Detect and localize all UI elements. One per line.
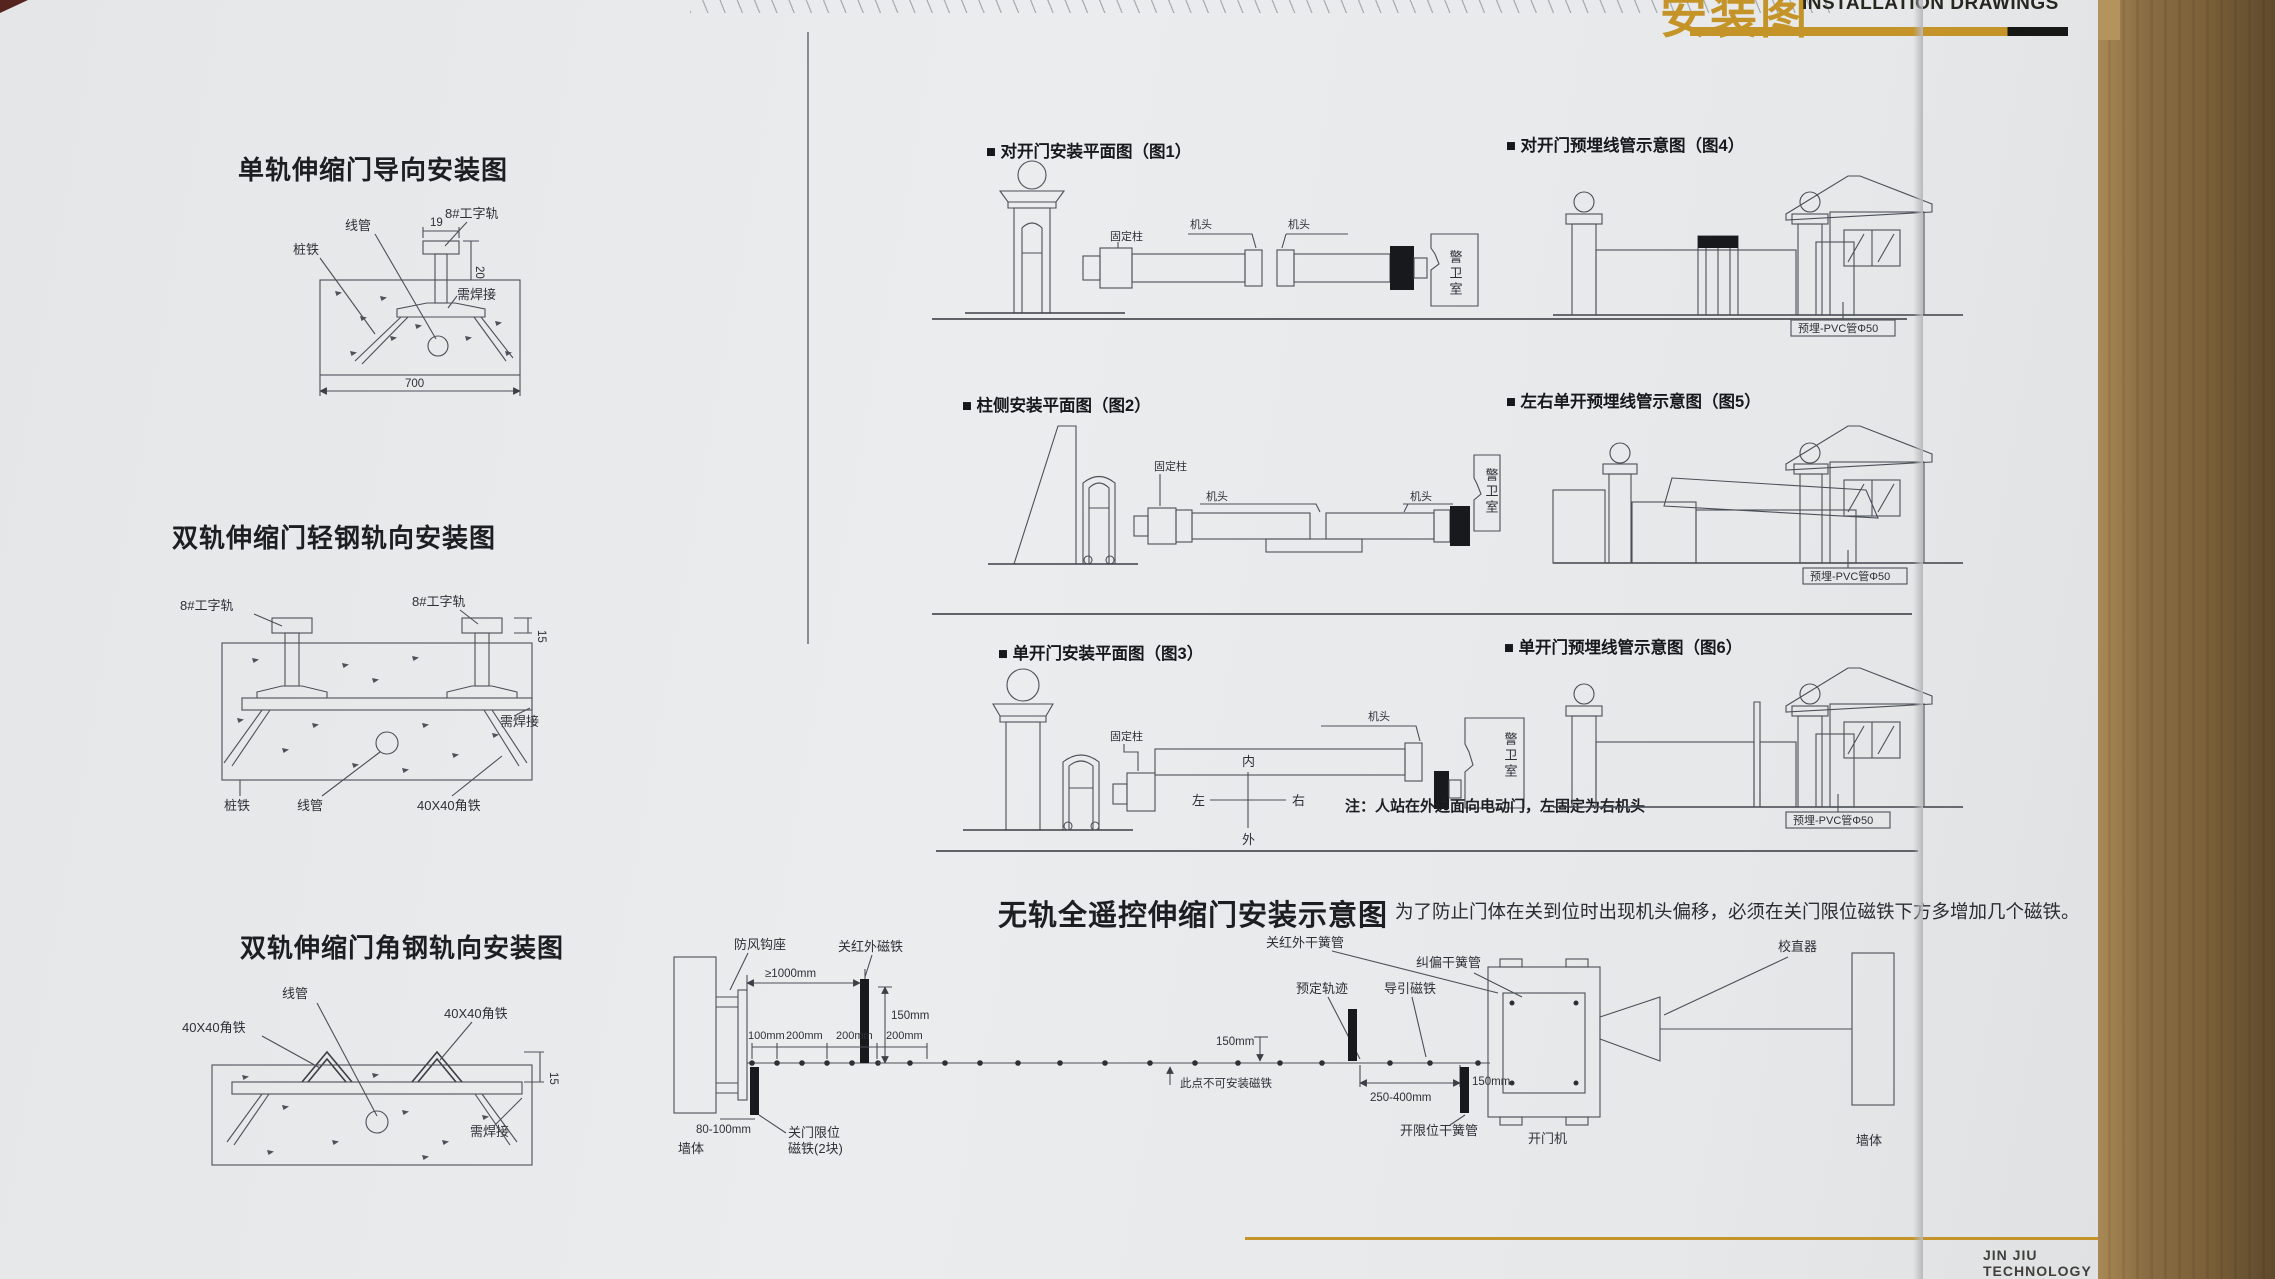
label-pile-iron: 桩铁 [293,242,319,257]
compass-inner: 内 [1242,754,1255,769]
trackless-note: 为了防止门体在关到位时出现机头偏移，必须在关门限位磁铁下方多增加几个磁铁。 [1395,898,2080,924]
label-angle-right: 40X40角铁 [444,1006,508,1021]
label-weld-3: 需焊接 [470,1124,509,1139]
label-head-2b: 机头 [1410,489,1432,503]
label-wall-left: 墙体 [678,1141,704,1156]
label-open-limit-reed: 开限位干簧管 [1400,1123,1478,1138]
diagram1-title: 单轨伸缩门导向安装图 [238,150,508,187]
dim-80-100: 80-100mm [696,1124,751,1136]
label-post-1: 固定柱 [1110,229,1143,243]
label-post-3: 固定柱 [1110,729,1143,743]
trackless-diagram: 墙体 墙体 防风钩座 ≥1000mm 关红外磁铁 [660,935,1980,1185]
fig6-elevation: 预埋-PVC管Φ50 [1548,642,1968,817]
diagram2-title: 双轨伸缩门轻钢轨向安装图 [172,518,496,555]
label-head-2a: 机头 [1206,489,1228,503]
dim-250-400: 250-400mm [1370,1092,1431,1104]
footer-accent-line [1245,1237,2098,1240]
label-weld: 需焊接 [457,287,496,302]
fig2-side-post-plan: 固定柱 机头 机头 警卫室 [948,408,1508,580]
label-no-magnet: 此点不可安装磁铁 [1180,1076,1272,1090]
label-head-1a: 机头 [1190,217,1212,231]
page-corner-mark [0,0,28,13]
dim-150-a: 150mm [891,1010,929,1022]
label-conduit-2: 线管 [297,798,323,813]
diagram2-double-rail-section: 8#工字轨 8#工字轨 15 需焊接 桩铁 线管 40X40角铁 [162,558,582,813]
label-rail: 8#工字轨 [445,206,498,221]
dim-20: 20 [473,266,485,279]
reed-bar [1348,1009,1357,1061]
dim-100: 100mm [748,1030,785,1042]
label-pvc-5: 预埋-PVC管Φ50 [1810,569,1890,583]
dim-200-b: 200mm [836,1030,873,1042]
footer-brand: JIN JIU TECHNOLOGY [1983,1247,2098,1279]
label-head-1b: 机头 [1288,217,1310,231]
compass: 内 外 左 右 [1192,754,1305,847]
page-edge-shadow [1913,0,1923,1279]
door-opener-machine [1488,959,1600,1125]
header-accent-bar [1690,27,2068,36]
compass-right: 右 [1292,793,1305,808]
label-wall-right: 墙体 [1856,1133,1882,1148]
dim-19: 19 [430,217,443,229]
row-divider-2 [932,613,1912,615]
label-ir-close-magnet: 关红外磁铁 [838,939,903,954]
dim-ge1000: ≥1000mm [765,968,816,980]
label-guard-1: 警卫室 [1448,249,1463,298]
diagram3-angle-rail-section: 线管 40X40角铁 40X40角铁 15 需焊接 [172,970,557,1180]
diagram1-monorail-section: 19 20 线管 桩铁 8#工字轨 需焊接 700 [205,196,525,406]
page-title-cn: 安装图 [1660,0,1810,47]
label-track: 预定轨迹 [1296,981,1348,996]
dim-15: 15 [535,630,547,643]
compass-left: 左 [1192,793,1205,808]
dim-15-3: 15 [547,1072,559,1085]
dim-150-b: 150mm [1216,1036,1254,1048]
label-pile-iron-2: 桩铁 [224,798,250,813]
label-post-2: 固定柱 [1154,459,1187,473]
open-limit-bar [1460,1067,1469,1113]
trackless-title: 无轨全遥控伸缩门安装示意图 [998,892,1388,934]
label-rail-left: 8#工字轨 [180,598,233,613]
dim-700: 700 [405,378,424,390]
close-limit-magnet-bar [750,1067,759,1115]
label-pvc-4: 预埋-PVC管Φ50 [1798,321,1878,335]
label-pvc-6: 预埋-PVC管Φ50 [1793,813,1873,827]
label-guard-3: 警卫室 [1503,731,1518,780]
diagram3-title: 双轨伸缩门角钢轨向安装图 [240,928,564,965]
label-rail-right: 8#工字轨 [412,594,465,609]
straightener-cone [1600,997,1660,1061]
label-angle-left: 40X40角铁 [182,1020,246,1035]
label-close-limit-1: 关门限位 [788,1125,840,1140]
dim-200-a: 200mm [786,1030,823,1042]
ir-close-magnet-bar [860,979,869,1063]
label-guard-2: 警卫室 [1484,467,1499,516]
page-title-en: INSTALLATION DRAWINGS [1802,0,2059,15]
table-background [2094,0,2275,1279]
column-divider [807,32,809,644]
fig4-elevation: 预埋-PVC管Φ50 [1548,150,1968,325]
label-angle-iron-2: 40X40角铁 [417,798,481,813]
fig3-single-gate-plan: 固定柱 机头 警卫室 内 外 左 右 [948,660,1548,860]
dim-150-c: 150mm [1472,1076,1510,1088]
label-straightener: 校直器 [1778,939,1817,954]
fig5-elevation: 预埋-PVC管Φ50 [1548,398,1968,573]
label-weld-2: 需焊接 [500,714,539,729]
label-rectify-reed: 纠偏干簧管 [1416,955,1481,970]
label-head-3: 机头 [1368,709,1390,723]
compass-outer: 外 [1242,832,1255,847]
label-ir-close-reed: 关红外干簧管 [1266,935,1344,950]
label-conduit: 线管 [345,218,371,233]
catalog-page: 安装图 INSTALLATION DRAWINGS 单轨伸缩门导向安装图 19 … [0,0,2098,1279]
label-opener: 开门机 [1528,1131,1567,1146]
photo-of-catalog-page: 安装图 INSTALLATION DRAWINGS 单轨伸缩门导向安装图 19 … [0,0,2275,1279]
label-windproof-hook: 防风钩座 [734,937,786,952]
label-conduit-3: 线管 [282,986,308,1001]
label-close-limit-2: 磁铁(2块) [788,1141,843,1156]
label-guide-magnet: 导引磁铁 [1384,981,1436,996]
fig1-double-gate-plan: 固定柱 机头 机头 警卫室 [950,158,1510,328]
dim-200-c: 200mm [886,1030,923,1042]
